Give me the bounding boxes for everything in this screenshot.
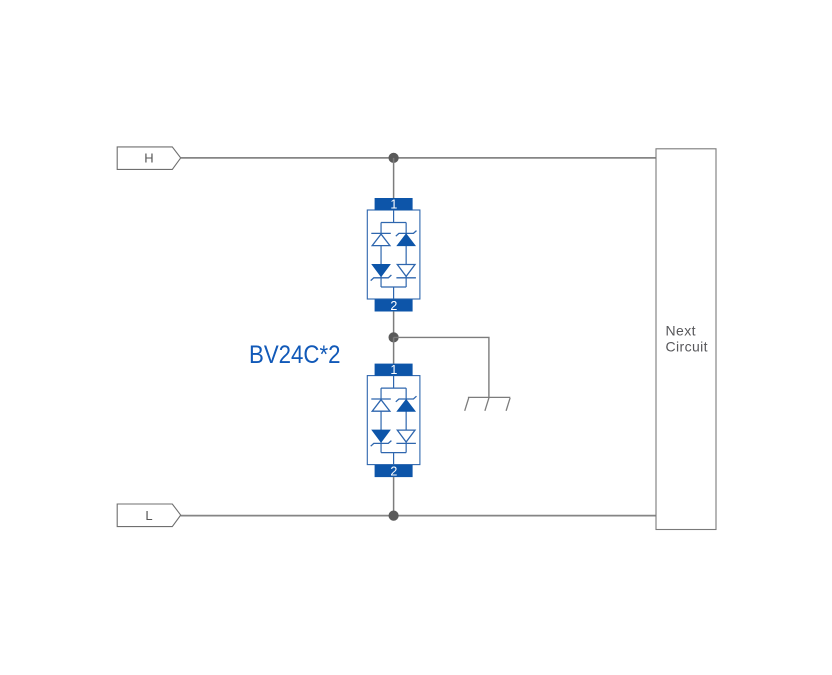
svg-text:Circuit: Circuit xyxy=(666,339,708,355)
svg-text:L: L xyxy=(145,508,152,523)
svg-text:Next: Next xyxy=(666,323,696,339)
svg-text:H: H xyxy=(144,151,153,166)
svg-text:BV24C*2: BV24C*2 xyxy=(249,341,341,369)
